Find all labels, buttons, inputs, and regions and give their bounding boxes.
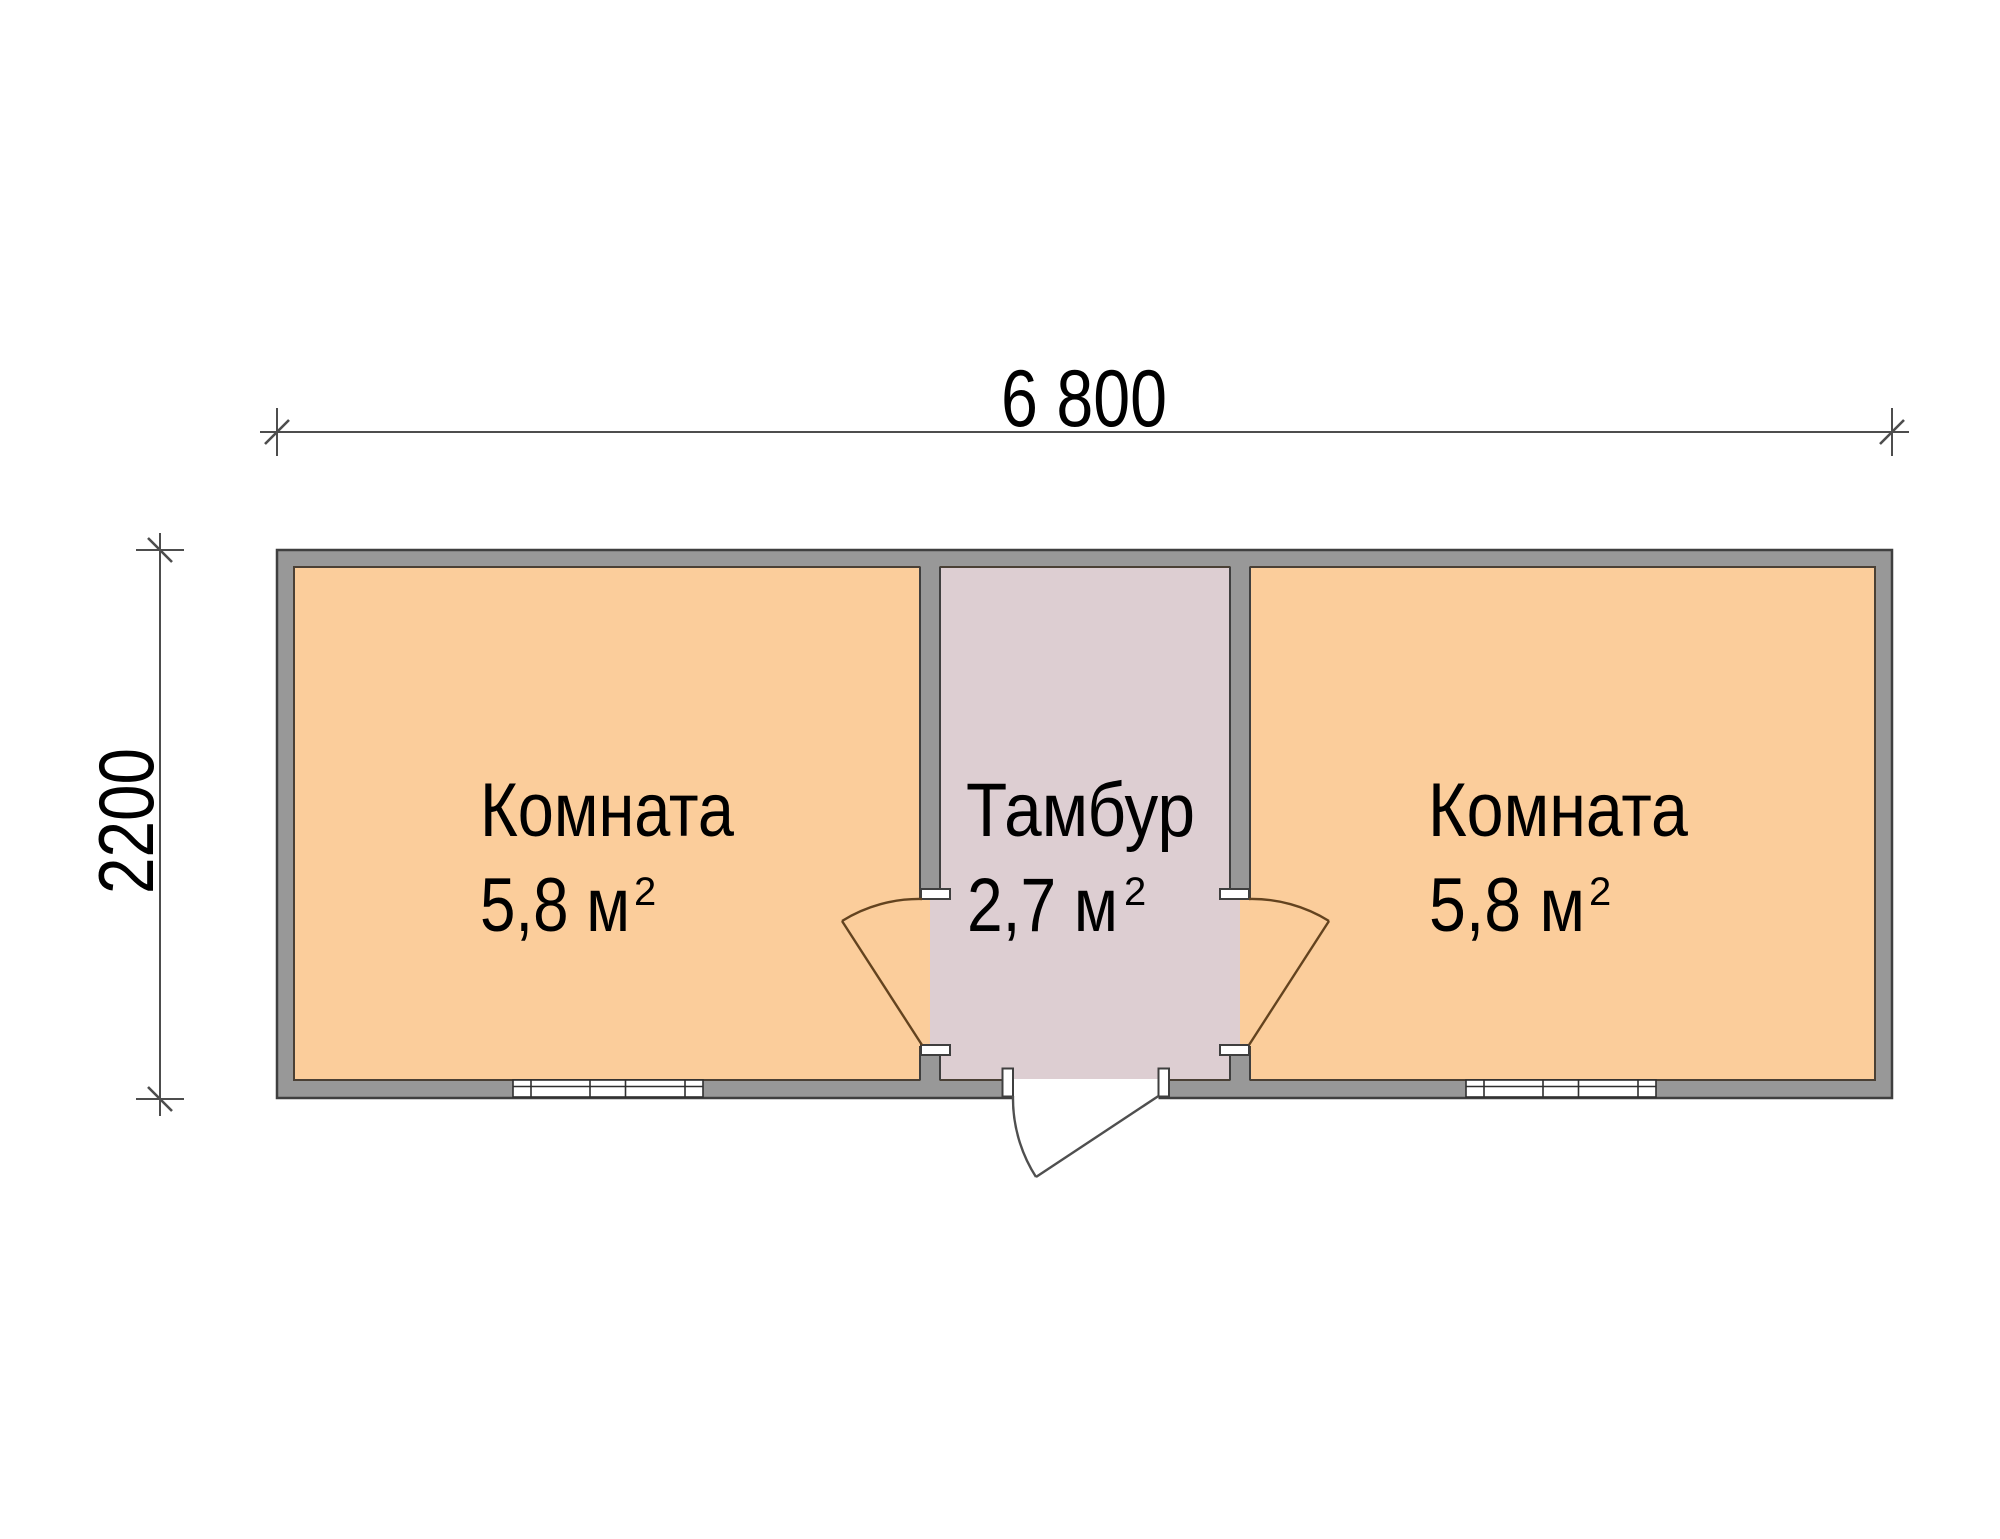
svg-text:2: 2 <box>1589 870 1611 914</box>
svg-text:2200: 2200 <box>82 748 170 894</box>
svg-text:2: 2 <box>634 870 656 914</box>
svg-text:2: 2 <box>1124 870 1146 914</box>
svg-text:2,7 м: 2,7 м <box>967 863 1118 948</box>
svg-text:Комната: Комната <box>480 768 735 853</box>
svg-text:6 800: 6 800 <box>1001 354 1167 444</box>
svg-text:5,8 м: 5,8 м <box>1429 863 1585 948</box>
svg-text:5,8 м: 5,8 м <box>480 863 630 948</box>
svg-text:Комната: Комната <box>1428 768 1689 853</box>
svg-text:Тамбур: Тамбур <box>966 768 1195 853</box>
